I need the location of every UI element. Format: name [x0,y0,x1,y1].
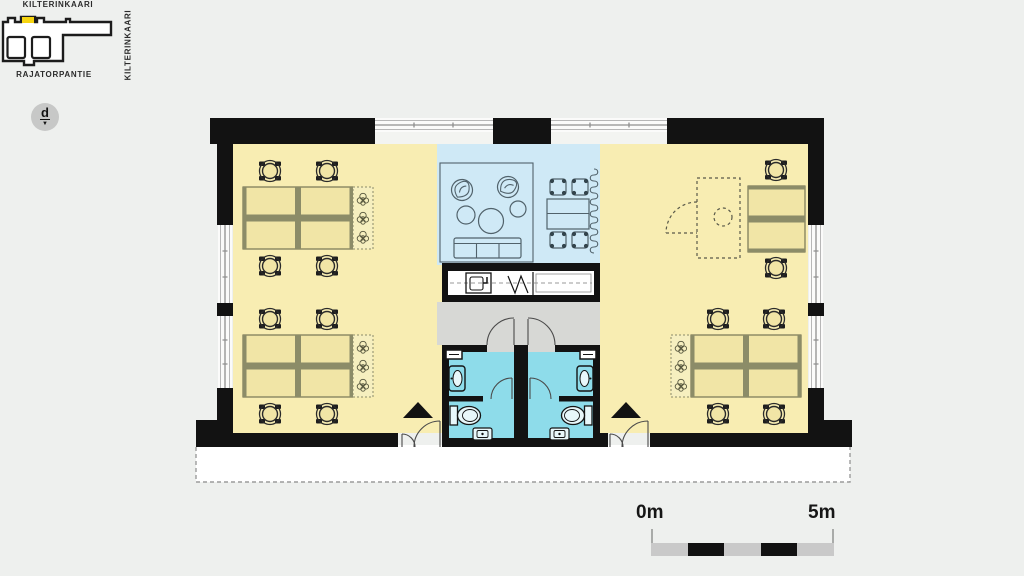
sofa [454,238,521,258]
scale-end-label: 5m [808,502,835,524]
kitchenette [442,263,600,302]
scale-bar-track [651,543,834,556]
street-label-right: KILTERINKAARI [124,10,133,81]
floor-plan-page: { "site_map": { "street_top": "KILTERINK… [0,0,1024,576]
window-strip [375,118,493,144]
plant-strip [353,335,373,397]
terrace [196,445,850,482]
coffee-table [479,209,504,234]
floor-plan-canvas [0,0,1024,576]
street-label-top: KILTERINKAARI [10,0,106,9]
window-strip [218,316,232,388]
window-strip [809,225,823,303]
dining-chair [550,232,566,248]
office-chair [707,309,729,330]
side-table [457,206,475,224]
desk-cluster [691,335,801,397]
toilet [450,406,481,425]
scale-tick [651,529,653,543]
bathroom-right [528,352,593,438]
desk-cluster [243,187,353,249]
floor-sink [550,428,569,440]
corridor [437,302,600,345]
office-chair [316,256,338,277]
plant-strip [353,187,373,249]
scale-bar-segment [761,543,798,556]
office-chair [707,404,729,425]
courtyard [8,37,26,58]
scale-bar-segment [688,543,725,556]
floor-selector[interactable]: d ▼ [31,103,59,131]
site-minimap[interactable] [3,17,111,65]
street-label-bottom: RAJATORPANTIE [10,70,98,79]
scale-tick [832,529,834,543]
office-chair [259,309,281,330]
floor-sink [473,428,492,440]
office-chair [259,256,281,277]
office-chair [763,404,785,425]
bathroom-block [442,345,600,447]
office-chair [259,404,281,425]
office-chair [316,404,338,425]
toilet [562,406,593,425]
office-chair [259,161,281,182]
office-chair [765,160,787,181]
office-chair [765,258,787,279]
dining-chair [550,179,566,195]
office-chair [316,309,338,330]
dining-chair [572,232,588,248]
desk-pair [748,186,805,252]
scale-start-label: 0m [636,502,663,524]
side-table [510,201,526,217]
window-strip [551,118,667,144]
desk-cluster [243,335,353,397]
office-chair [763,309,785,330]
current-location-highlight [22,17,34,23]
plant-strip [671,335,691,397]
window-strip [809,316,823,388]
bathroom-left [449,352,514,438]
courtyard [32,37,50,58]
floor-selector-label[interactable]: d [40,107,50,120]
window-strip [218,225,232,303]
office-chair [316,161,338,182]
dining-chair [572,179,588,195]
chevron-down-icon: ▼ [42,121,48,127]
